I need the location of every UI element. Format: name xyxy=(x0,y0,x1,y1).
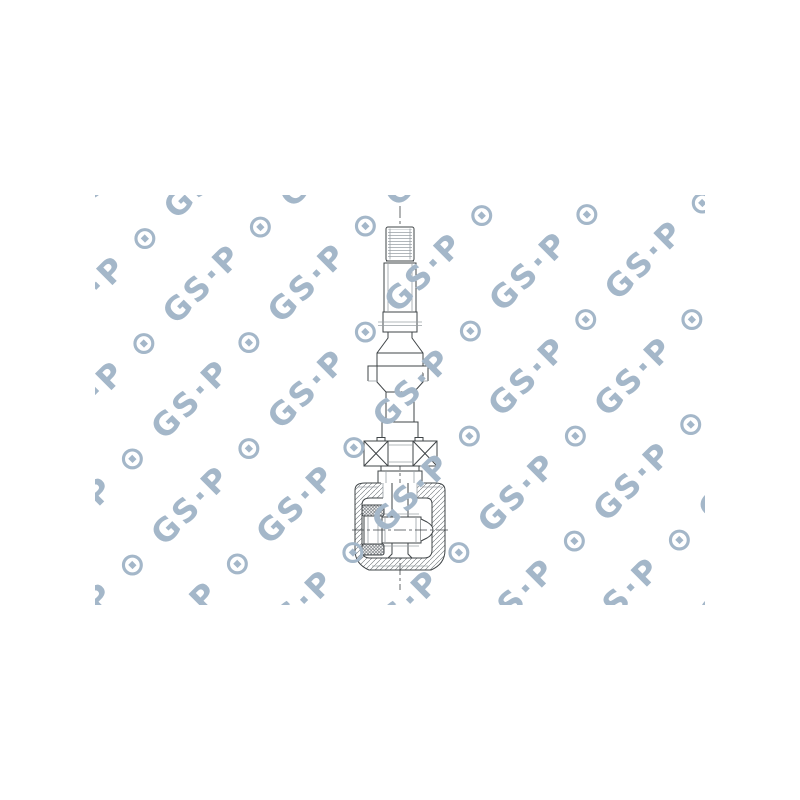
boot-shield-flange xyxy=(368,366,428,392)
boot-clamp-band xyxy=(364,438,437,467)
product-image-canvas: GS·P xyxy=(0,0,800,800)
shaft-flare xyxy=(377,332,423,366)
threaded-stub xyxy=(386,227,414,261)
shaft-lower-cylinder xyxy=(382,392,418,441)
cv-joint-drawing xyxy=(0,0,800,800)
shaft-upper-cylinder xyxy=(384,263,416,312)
shaft-collar xyxy=(378,312,422,332)
